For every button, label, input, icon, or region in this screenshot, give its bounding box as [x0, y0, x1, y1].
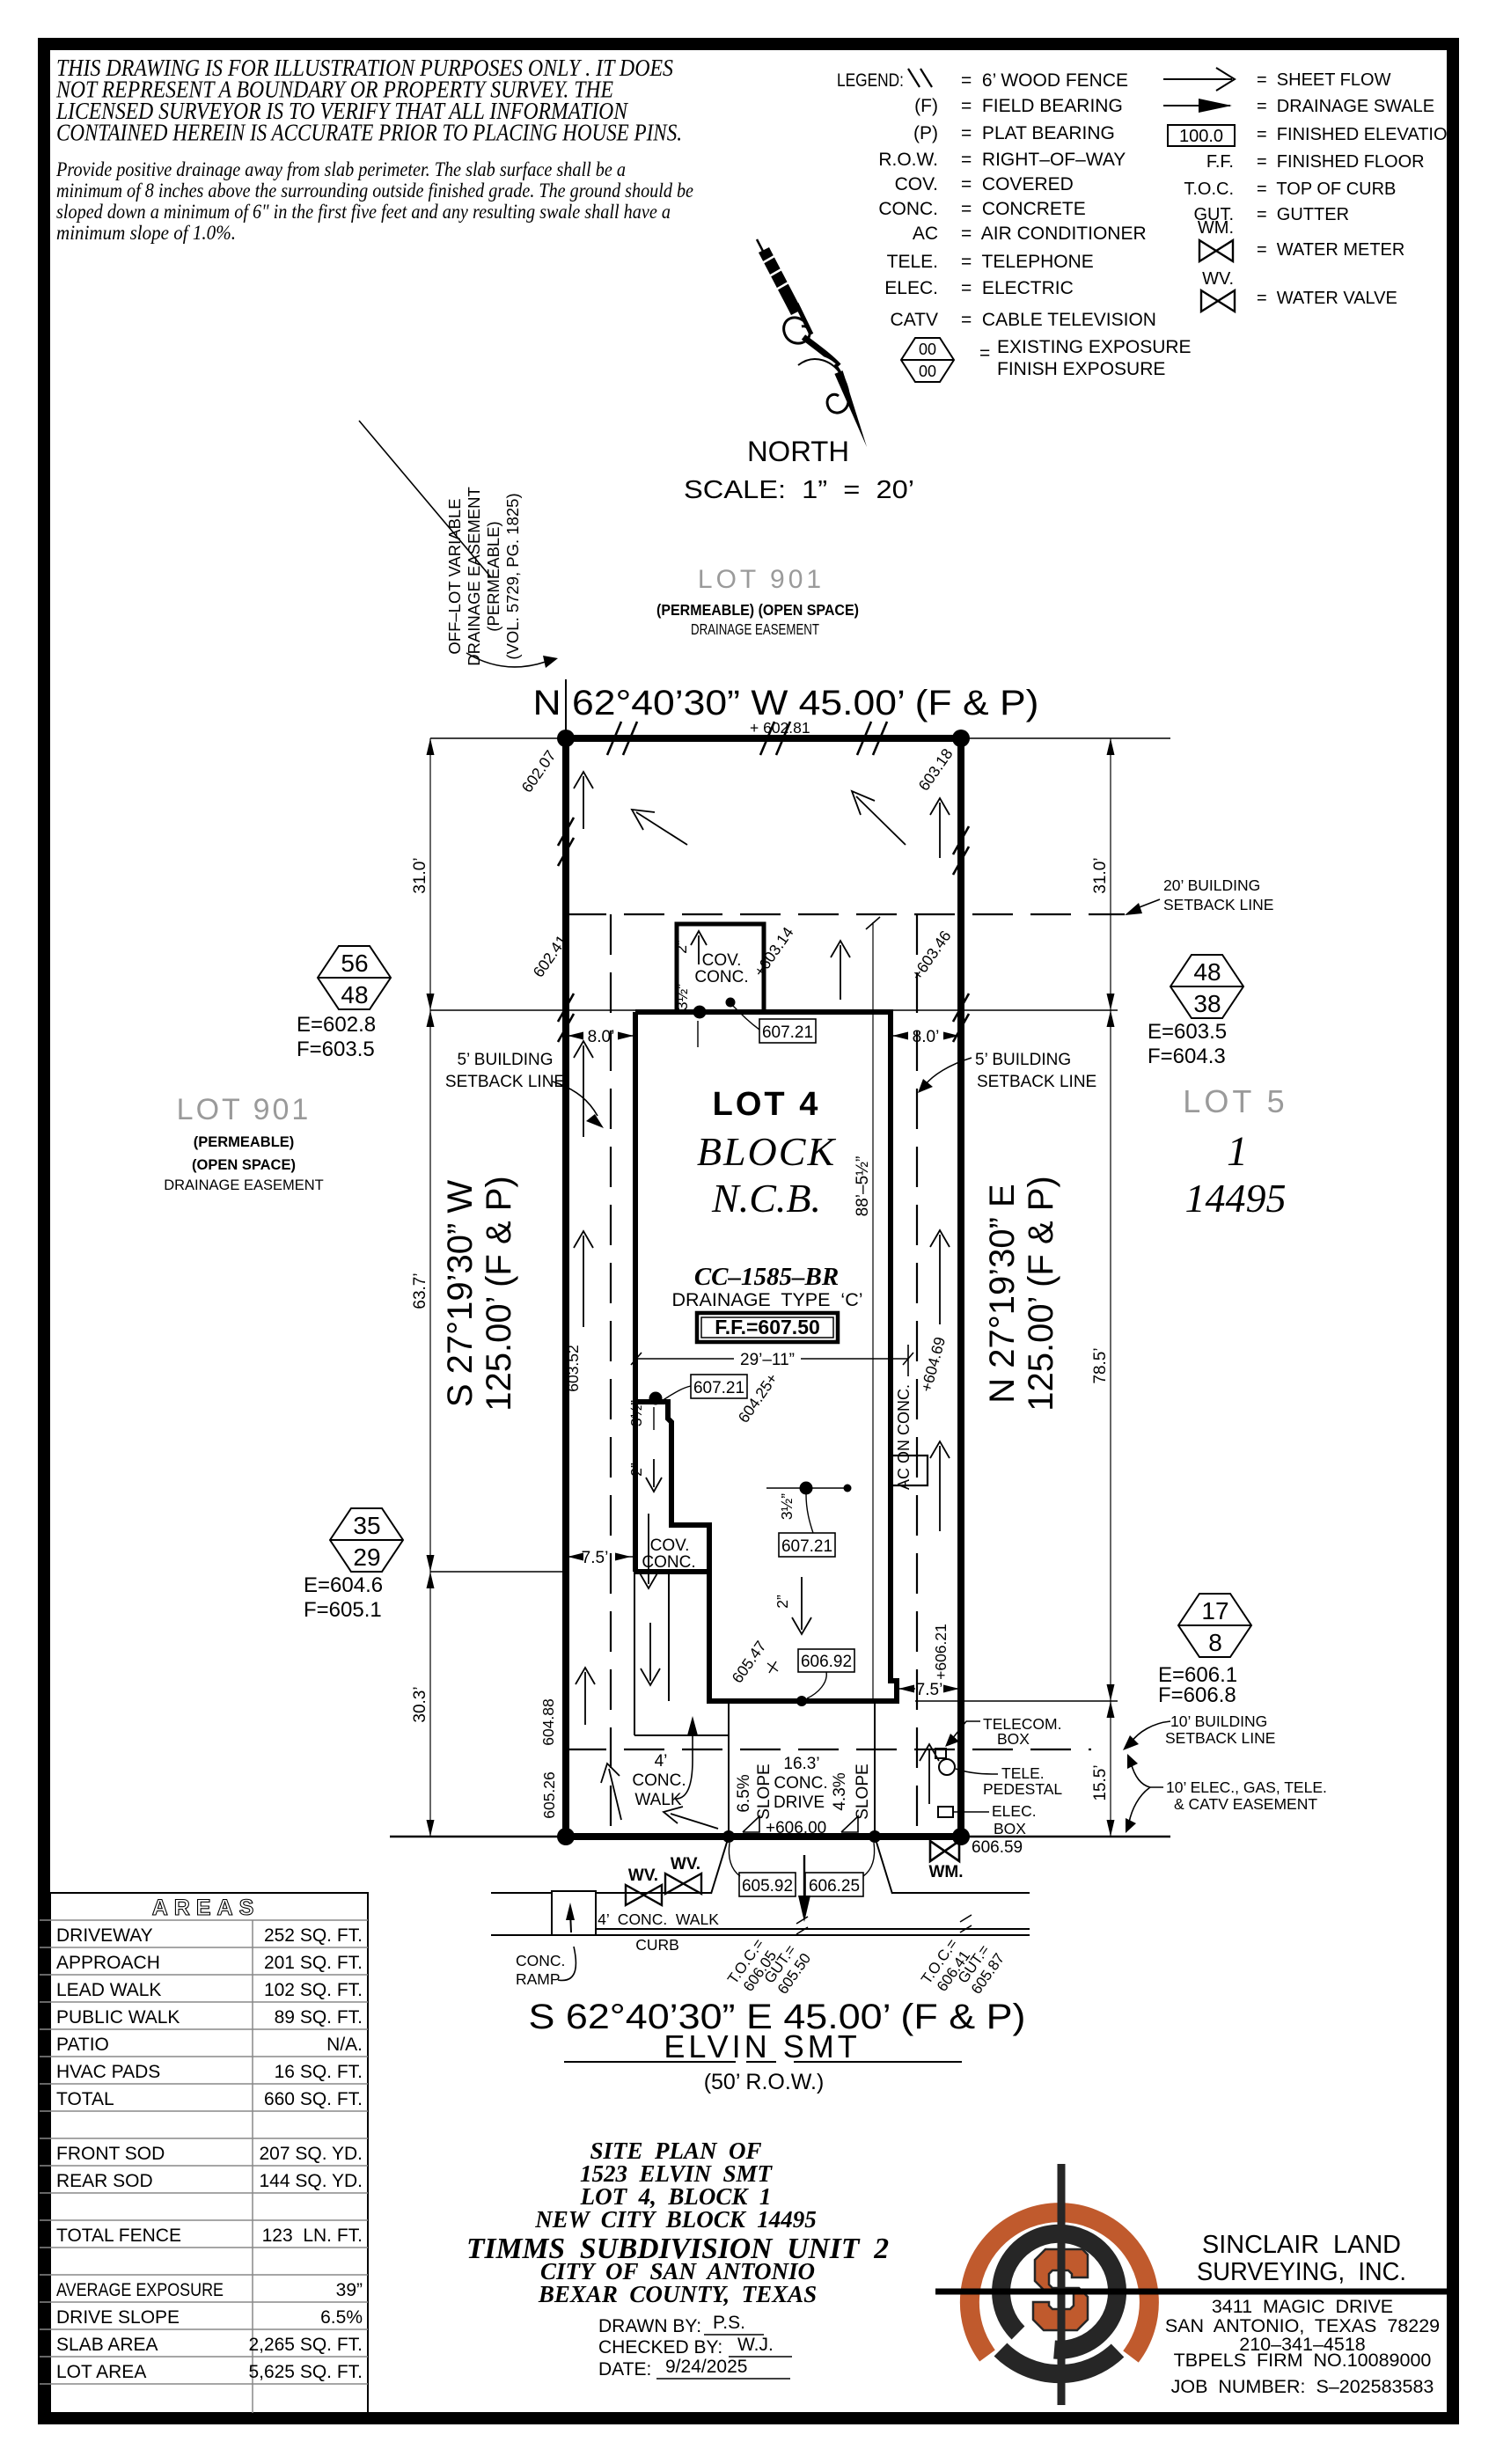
svg-text:Provide positive drainage away: Provide positive drainage away from slab… [55, 158, 626, 181]
svg-text:minimum slope of 1.0%.: minimum slope of 1.0%. [56, 222, 236, 245]
svg-text:WV.: WV. [671, 1855, 700, 1874]
svg-text:= FIELD BEARING: = FIELD BEARING [961, 96, 1123, 116]
svg-text:LEGEND:: LEGEND: [837, 70, 904, 91]
svg-text:607.21: 607.21 [693, 1379, 744, 1397]
svg-text:TELE.: TELE. [887, 252, 938, 272]
svg-text:(PERMEABLE): (PERMEABLE) [194, 1134, 295, 1150]
svg-text:125.00’ (F & P): 125.00’ (F & P) [1022, 1176, 1060, 1412]
svg-text:E=602.8: E=602.8 [297, 1013, 376, 1037]
svg-text:FRONT SOD: FRONT SOD [56, 2144, 165, 2164]
svg-text:ELEC.: ELEC. [884, 278, 938, 298]
svg-text:ELEC.: ELEC. [992, 1802, 1037, 1820]
svg-text:SLOPE: SLOPE [854, 1764, 872, 1819]
svg-text:WM.: WM. [1198, 218, 1234, 238]
svg-text:BLOCK: BLOCK [697, 1129, 837, 1174]
svg-text:BOX: BOX [997, 1730, 1030, 1748]
svg-text:8.0’: 8.0’ [588, 1028, 615, 1046]
svg-text:LOT AREA: LOT AREA [56, 2362, 146, 2382]
svg-text:5,625 SQ. FT.: 5,625 SQ. FT. [248, 2362, 363, 2382]
svg-text:5’ BUILDING: 5’ BUILDING [457, 1051, 553, 1069]
svg-text:125.00’ (F & P): 125.00’ (F & P) [480, 1176, 518, 1412]
svg-text:SETBACK LINE: SETBACK LINE [1165, 1729, 1275, 1747]
svg-text:606.25: 606.25 [809, 1877, 860, 1896]
svg-text:COV.: COV. [702, 951, 742, 970]
svg-text:+606.00: +606.00 [766, 1819, 826, 1837]
svg-text:252 SQ. FT.: 252 SQ. FT. [264, 1925, 363, 1946]
svg-text:(50’ R.O.W.): (50’ R.O.W.) [704, 2070, 825, 2094]
svg-text:N 27°19’30” E: N 27°19’30” E [983, 1184, 1022, 1403]
svg-text:3½”: 3½” [627, 1400, 645, 1426]
svg-text:DRAINAGE EASEMENT: DRAINAGE EASEMENT [691, 620, 819, 638]
svg-text:F=603.5: F=603.5 [297, 1038, 375, 1061]
svg-text:16 SQ. FT.: 16 SQ. FT. [275, 2062, 363, 2082]
svg-text:= GUTTER: = GUTTER [1257, 205, 1349, 224]
svg-text:605.26: 605.26 [540, 1771, 558, 1819]
svg-text:DRAINAGE TYPE ‘C’: DRAINAGE TYPE ‘C’ [671, 1289, 862, 1310]
svg-text:604.88: 604.88 [539, 1698, 557, 1746]
svg-text:WV.: WV. [628, 1866, 658, 1885]
svg-text:CATV: CATV [891, 310, 938, 330]
svg-text:CURB: CURB [635, 1936, 679, 1954]
svg-text:WM.: WM. [928, 1863, 963, 1881]
svg-text:= FINISHED ELEVATION: = FINISHED ELEVATION [1257, 125, 1460, 144]
svg-text:660 SQ. FT.: 660 SQ. FT. [264, 2089, 363, 2109]
svg-text:5’ BUILDING: 5’ BUILDING [975, 1051, 1071, 1069]
svg-text:PEDESTAL: PEDESTAL [983, 1780, 1062, 1798]
svg-text:607.21: 607.21 [762, 1023, 813, 1042]
svg-text:8.0’: 8.0’ [913, 1028, 940, 1046]
svg-text:= COVERED: = COVERED [961, 174, 1074, 194]
svg-text:F=604.3: F=604.3 [1148, 1045, 1226, 1068]
svg-text:10’ ELEC., GAS, TELE.: 10’ ELEC., GAS, TELE. [1166, 1778, 1327, 1796]
svg-text:4.3%: 4.3% [831, 1772, 849, 1810]
svg-text:LOT 4: LOT 4 [713, 1086, 821, 1123]
svg-text:CONTAINED HEREIN IS ACCURATE P: CONTAINED HEREIN IS ACCURATE PRIOR TO PL… [56, 120, 682, 146]
svg-text:F.F.=607.50: F.F.=607.50 [715, 1316, 820, 1338]
svg-text:sloped down a minimum of 6" in: sloped down a minimum of 6" in the first… [56, 201, 671, 224]
svg-text:48: 48 [341, 981, 368, 1008]
svg-text:607.21: 607.21 [781, 1537, 832, 1556]
svg-text:00: 00 [919, 341, 936, 358]
svg-text:BOX: BOX [994, 1820, 1026, 1837]
svg-text:& CATV EASEMENT: & CATV EASEMENT [1174, 1795, 1317, 1813]
svg-text:WV.: WV. [1202, 269, 1234, 289]
svg-text:AC ON CONC.: AC ON CONC. [895, 1384, 913, 1490]
svg-text:SETBACK LINE: SETBACK LINE [1163, 896, 1273, 913]
svg-text:TOTAL: TOTAL [56, 2089, 114, 2109]
svg-text:+ 602.81: + 602.81 [750, 719, 810, 737]
svg-text:minimum of 8 inches above the: minimum of 8 inches above the surroundin… [56, 180, 693, 202]
svg-text:603.52: 603.52 [564, 1345, 582, 1392]
svg-text:2,265 SQ. FT.: 2,265 SQ. FT. [248, 2335, 363, 2355]
svg-text:9/24/2025: 9/24/2025 [665, 2357, 747, 2377]
svg-text:AC: AC [913, 224, 938, 244]
svg-text:CONC.: CONC. [516, 1952, 565, 1969]
svg-text:207 SQ. YD.: 207 SQ. YD. [259, 2144, 363, 2164]
svg-text:PUBLIC WALK: PUBLIC WALK [56, 2007, 180, 2028]
svg-text:3411 MAGIC DRIVE: 3411 MAGIC DRIVE [1212, 2296, 1393, 2317]
svg-text:(PERMEABLE): (PERMEABLE) [484, 521, 502, 631]
svg-text:(P): (P) [913, 123, 938, 143]
svg-text:10’ BUILDING: 10’ BUILDING [1170, 1712, 1267, 1730]
svg-text:T.O.C.: T.O.C. [1184, 180, 1234, 199]
svg-text:30.3’: 30.3’ [411, 1686, 429, 1722]
svg-text:APPROACH: APPROACH [56, 1953, 160, 1973]
svg-text:RAMP: RAMP [516, 1970, 561, 1988]
svg-text:2”: 2” [627, 1463, 645, 1477]
svg-text:(F): (F) [914, 96, 938, 116]
svg-text:F.F.: F.F. [1206, 152, 1234, 172]
svg-text:= 6’ WOOD FENCE: = 6’ WOOD FENCE [961, 70, 1128, 91]
svg-text:ELVIN SMT: ELVIN SMT [664, 2028, 860, 2064]
svg-text:= TOP OF CURB: = TOP OF CURB [1257, 180, 1396, 199]
svg-text:= AIR CONDITIONER: = AIR CONDITIONER [961, 224, 1147, 244]
svg-text:29: 29 [353, 1544, 380, 1571]
svg-text:= SHEET FLOW: = SHEET FLOW [1257, 70, 1391, 90]
svg-text:OFF–LOT VARIABLE: OFF–LOT VARIABLE [445, 498, 464, 654]
svg-text:144 SQ. YD.: 144 SQ. YD. [259, 2171, 363, 2191]
svg-text:PATIO: PATIO [56, 2035, 109, 2055]
svg-text:= WATER METER: = WATER METER [1257, 240, 1404, 260]
svg-text:(OPEN SPACE): (OPEN SPACE) [192, 1157, 296, 1173]
svg-text:606.59: 606.59 [972, 1838, 1023, 1857]
svg-text:SETBACK LINE: SETBACK LINE [445, 1073, 565, 1091]
svg-text:SINCLAIR LAND: SINCLAIR LAND [1202, 2231, 1401, 2259]
svg-text:BEXAR COUNTY, TEXAS: BEXAR COUNTY, TEXAS [538, 2281, 817, 2307]
svg-text:6.5%: 6.5% [320, 2307, 363, 2328]
svg-text:CC–1585–BR: CC–1585–BR [694, 1263, 839, 1291]
svg-text:63.7’: 63.7’ [411, 1272, 429, 1309]
svg-text:CONC.: CONC. [878, 199, 938, 219]
svg-text:= CABLE TELEVISION: = CABLE TELEVISION [961, 310, 1156, 330]
svg-text:REAR SOD: REAR SOD [56, 2171, 153, 2191]
svg-text:=: = [979, 343, 990, 363]
svg-text:29’–11”: 29’–11” [740, 1351, 795, 1369]
svg-text:2”: 2” [672, 940, 690, 954]
svg-text:8: 8 [1208, 1629, 1222, 1656]
svg-text:E=603.5: E=603.5 [1148, 1020, 1227, 1044]
svg-text:F=606.8: F=606.8 [1158, 1683, 1236, 1707]
svg-text:606.92: 606.92 [801, 1653, 852, 1671]
svg-text:4’ CONC. WALK: 4’ CONC. WALK [598, 1910, 719, 1928]
svg-text:17: 17 [1201, 1597, 1228, 1624]
svg-text:= DRAINAGE SWALE: = DRAINAGE SWALE [1257, 97, 1434, 116]
svg-text:S 27°19’30” W: S 27°19’30” W [441, 1180, 480, 1408]
svg-text:20’ BUILDING: 20’ BUILDING [1163, 876, 1260, 894]
svg-text:TELE.: TELE. [1001, 1764, 1045, 1782]
svg-text:DRIVE: DRIVE [774, 1793, 825, 1812]
svg-text:+606.21: +606.21 [932, 1624, 950, 1680]
svg-text:123 LN. FT.: 123 LN. FT. [262, 2226, 363, 2246]
svg-text:= ELECTRIC: = ELECTRIC [961, 278, 1074, 298]
svg-text:605.92: 605.92 [742, 1877, 793, 1896]
svg-text:FINISH EXPOSURE: FINISH EXPOSURE [997, 359, 1165, 379]
svg-text:WALK: WALK [634, 1791, 681, 1809]
svg-text:TOTAL FENCE: TOTAL FENCE [56, 2226, 181, 2246]
svg-text:16.3’: 16.3’ [783, 1755, 819, 1773]
svg-text:SURVEYING, INC.: SURVEYING, INC. [1197, 2258, 1406, 2286]
svg-text:15.5’: 15.5’ [1091, 1764, 1110, 1800]
svg-text:N.C.B.: N.C.B. [711, 1176, 821, 1221]
svg-text:LOT 901: LOT 901 [698, 565, 825, 594]
svg-text:= TELEPHONE: = TELEPHONE [961, 252, 1094, 272]
svg-text:E=604.6: E=604.6 [304, 1573, 383, 1597]
svg-text:= CONCRETE: = CONCRETE [961, 199, 1086, 219]
svg-text:W.J.: W.J. [737, 2335, 774, 2355]
svg-text:3½”: 3½” [673, 984, 691, 1010]
svg-text:P.S.: P.S. [713, 2313, 745, 2333]
svg-text:201 SQ. FT.: 201 SQ. FT. [264, 1953, 363, 1973]
svg-text:(PERMEABLE) (OPEN SPACE): (PERMEABLE) (OPEN SPACE) [656, 601, 859, 619]
svg-text:DRIVEWAY: DRIVEWAY [56, 1925, 153, 1946]
svg-text:SETBACK LINE: SETBACK LINE [977, 1073, 1096, 1091]
svg-text:3½”: 3½” [778, 1493, 796, 1520]
svg-text:NEW CITY BLOCK 14495: NEW CITY BLOCK 14495 [534, 2206, 817, 2233]
svg-text:CONC.: CONC. [774, 1774, 827, 1793]
svg-text:00: 00 [919, 363, 936, 380]
svg-text:= FINISHED FLOOR: = FINISHED FLOOR [1257, 152, 1425, 172]
svg-text:31.0’: 31.0’ [1091, 857, 1110, 893]
svg-text:JOB NUMBER: S–202583583: JOB NUMBER: S–202583583 [1171, 2376, 1434, 2397]
svg-text:EXISTING EXPOSURE: EXISTING EXPOSURE [997, 337, 1192, 357]
svg-text:6.5%: 6.5% [735, 1774, 753, 1812]
svg-text:7.5’: 7.5’ [582, 1549, 609, 1567]
svg-text:DRAINAGE EASEMENT: DRAINAGE EASEMENT [164, 1177, 324, 1193]
svg-text:HVAC PADS: HVAC PADS [56, 2062, 160, 2082]
svg-text:= PLAT BEARING: = PLAT BEARING [961, 123, 1115, 143]
svg-text:TBPELS FIRM NO.10089000: TBPELS FIRM NO.10089000 [1174, 2350, 1432, 2371]
svg-text:= RIGHT–OF–WAY: = RIGHT–OF–WAY [961, 150, 1126, 170]
svg-text:56: 56 [341, 950, 368, 977]
svg-text:100.0: 100.0 [1179, 127, 1223, 146]
svg-text:SLAB AREA: SLAB AREA [56, 2335, 158, 2355]
svg-text:88’–5½”: 88’–5½” [854, 1156, 872, 1217]
svg-text:CHECKED BY:: CHECKED BY: [598, 2337, 722, 2358]
svg-text:AREAS: AREAS [152, 1896, 260, 1920]
svg-text:102 SQ. FT.: 102 SQ. FT. [264, 1980, 363, 2000]
svg-text:F=605.1: F=605.1 [304, 1598, 382, 1622]
svg-text:1: 1 [1227, 1128, 1248, 1175]
svg-text:DRAWN BY:: DRAWN BY: [598, 2316, 701, 2336]
svg-text:LOT 5: LOT 5 [1183, 1083, 1287, 1119]
svg-text:COV.: COV. [895, 174, 938, 194]
svg-text:7.5’: 7.5’ [916, 1681, 943, 1699]
svg-text:CONC.: CONC. [632, 1771, 686, 1790]
svg-text:89 SQ. FT.: 89 SQ. FT. [275, 2007, 363, 2028]
svg-text:LEAD WALK: LEAD WALK [56, 1980, 161, 2000]
svg-text:SLOPE: SLOPE [755, 1764, 774, 1819]
svg-text:78.5’: 78.5’ [1091, 1347, 1110, 1383]
svg-text:(VOL. 5729, PG. 1825): (VOL. 5729, PG. 1825) [503, 493, 522, 659]
svg-text:DRAINAGE EASEMENT: DRAINAGE EASEMENT [465, 487, 483, 666]
svg-text:CONC.: CONC. [642, 1553, 695, 1572]
svg-text:14495: 14495 [1185, 1176, 1287, 1221]
svg-text:DATE:: DATE: [598, 2359, 651, 2380]
svg-text:= WATER VALVE: = WATER VALVE [1257, 289, 1397, 308]
svg-text:CONC.: CONC. [694, 968, 748, 986]
svg-text:35: 35 [353, 1512, 380, 1539]
svg-text:SCALE: 1” = 20’: SCALE: 1” = 20’ [684, 476, 914, 504]
svg-text:4’: 4’ [655, 1752, 668, 1771]
svg-text:39”: 39” [336, 2280, 363, 2300]
svg-text:2”: 2” [774, 1595, 791, 1609]
svg-text:48: 48 [1193, 958, 1221, 986]
svg-text:DRIVE SLOPE: DRIVE SLOPE [56, 2307, 180, 2328]
svg-text:NORTH: NORTH [747, 436, 849, 467]
svg-text:N 62°40’30” W 45.00’ (F & P): N 62°40’30” W 45.00’ (F & P) [533, 684, 1039, 722]
svg-text:38: 38 [1193, 990, 1221, 1017]
svg-text:N/A.: N/A. [326, 2035, 363, 2055]
svg-text:31.0’: 31.0’ [411, 857, 429, 893]
svg-text:COV.: COV. [650, 1536, 690, 1555]
svg-text:LOT 901: LOT 901 [177, 1093, 312, 1126]
svg-text:R.O.W.: R.O.W. [878, 150, 938, 170]
svg-text:AVERAGE EXPOSURE: AVERAGE EXPOSURE [56, 2280, 224, 2300]
